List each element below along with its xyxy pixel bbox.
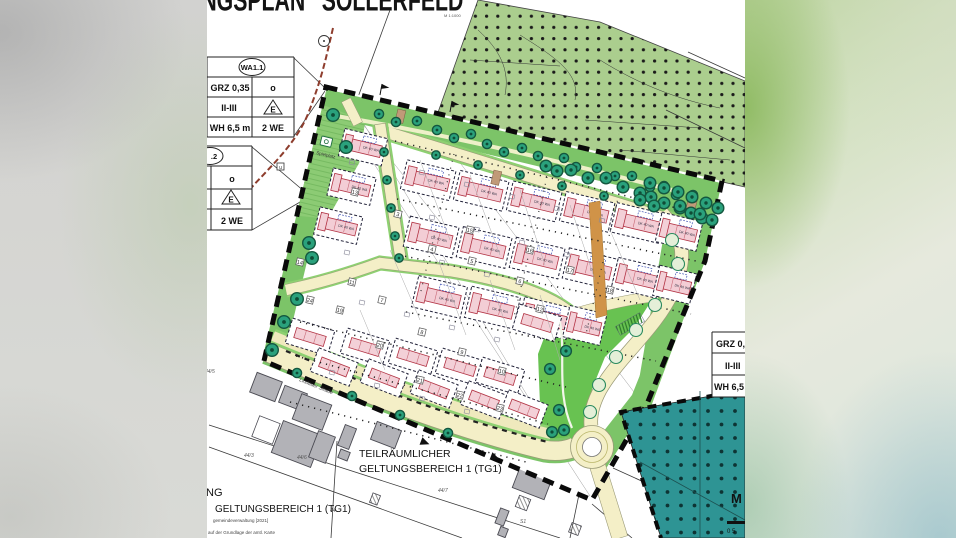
svg-text:44/6: 44/6 <box>297 455 307 461</box>
svg-text:UNGSPLAN “SOLLERFELD”: UNGSPLAN “SOLLERFELD” <box>186 0 474 18</box>
svg-text:M: M <box>731 491 742 506</box>
svg-text:S1: S1 <box>520 519 526 525</box>
svg-text:II-III: II-III <box>725 361 741 371</box>
svg-text:44/3: 44/3 <box>244 453 254 459</box>
svg-text:WH 6,5: WH 6,5 <box>714 382 744 392</box>
svg-text:44: 44 <box>330 508 336 514</box>
svg-text:TEILRÄUMLICHER: TEILRÄUMLICHER <box>359 448 451 460</box>
svg-text:II-III: II-III <box>221 103 237 113</box>
svg-text:o: o <box>270 83 276 93</box>
svg-text:NG: NG <box>206 487 223 499</box>
svg-text:gemeindeverwaltung [2021]: gemeindeverwaltung [2021] <box>213 518 268 523</box>
svg-text:2 WE: 2 WE <box>221 216 243 226</box>
svg-text:0 5: 0 5 <box>727 529 736 535</box>
svg-text:.2: .2 <box>211 152 217 161</box>
svg-text:2 WE: 2 WE <box>262 123 284 133</box>
svg-text:WA1.1: WA1.1 <box>241 63 264 72</box>
svg-text:M 1:1000: M 1:1000 <box>444 13 461 18</box>
svg-text:auf der Grundlage der amtl. Ka: auf der Grundlage der amtl. Karte <box>208 530 276 535</box>
svg-text:u: u <box>279 165 282 171</box>
svg-text:E: E <box>270 106 276 115</box>
svg-text:GELTUNGSBEREICH 1 (TG1): GELTUNGSBEREICH 1 (TG1) <box>359 463 502 475</box>
svg-text:GRZ 0,: GRZ 0, <box>716 339 745 349</box>
svg-text:WH 6,5 m: WH 6,5 m <box>210 123 251 133</box>
svg-text:44/7: 44/7 <box>438 488 448 494</box>
svg-text:GRZ 0,35: GRZ 0,35 <box>210 83 249 93</box>
svg-text:o: o <box>229 174 235 184</box>
svg-text:E: E <box>228 196 234 205</box>
